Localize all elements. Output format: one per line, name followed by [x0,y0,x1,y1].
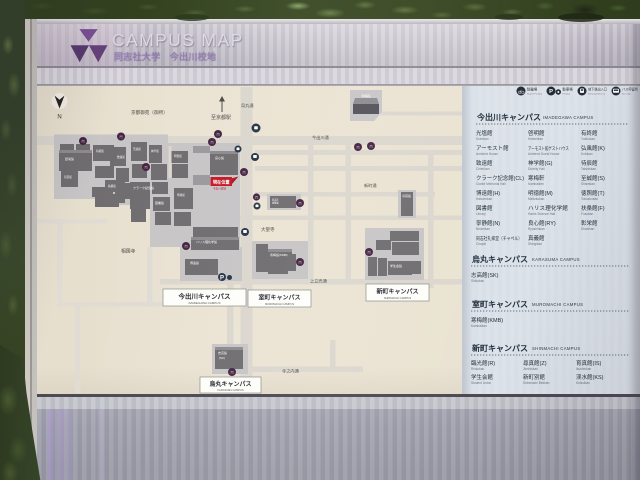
svg-text:Jinshinkan: Jinshinkan [523,367,538,371]
svg-text:今出川校地: 今出川校地 [213,187,226,191]
svg-text:Koenkan: Koenkan [476,137,489,141]
svg-text:(SK): (SK) [219,356,225,360]
svg-text:MUROMACHI CAMPUS: MUROMACHI CAMPUS [532,302,583,307]
svg-text:啓明館: 啓明館 [528,129,545,137]
svg-text:尋真館(Z): 尋真館(Z) [523,359,547,367]
svg-text:Shingikan: Shingikan [528,242,542,246]
svg-text:Fusokan: Fusokan [581,212,593,216]
svg-text:Amherst Guest House: Amherst Guest House [528,152,560,156]
svg-text:Chapel: Chapel [476,242,486,246]
svg-text:駐輪場: 駐輪場 [527,87,538,92]
svg-text:IMADEGAWA CAMPUS: IMADEGAWA CAMPUS [189,301,221,305]
svg-text:KARASUMA CAMPUS: KARASUMA CAMPUS [532,257,580,262]
svg-text:相国寺: 相国寺 [121,248,136,255]
svg-text:Ryoshinkan: Ryoshinkan [528,227,545,231]
svg-text:寧静館(N): 寧静館(N) [476,219,500,227]
svg-text:扶桑館(F): 扶桑館(F) [581,204,605,212]
svg-text:至誠館(S): 至誠館(S) [581,174,605,182]
svg-text:門: 門 [231,370,234,374]
svg-text:至誠館: 至誠館 [133,147,141,151]
svg-text:志高館: 志高館 [218,350,227,355]
svg-text:門: 門 [255,195,258,199]
svg-text:Rinkokan: Rinkokan [471,367,485,371]
svg-text:Neiseikan: Neiseikan [476,227,490,231]
svg-text:新町別館: 新町別館 [523,373,546,381]
svg-text:待辰館: 待辰館 [64,175,72,179]
svg-text:博遠館: 博遠館 [190,260,199,265]
svg-text:博遠館(H): 博遠館(H) [476,189,500,197]
svg-text:烏丸キャンパス: 烏丸キャンパス [472,254,528,264]
svg-text:門: 門 [357,145,360,149]
svg-text:P: P [549,89,553,95]
svg-text:N: N [57,115,61,121]
svg-text:現在位置: 現在位置 [213,178,231,185]
svg-text:徳照館(T): 徳照館(T) [581,189,605,197]
svg-text:烏丸通: 烏丸通 [241,102,254,109]
svg-text:至京都駅: 至京都駅 [211,114,231,121]
svg-text:烏丸キャンパス: 烏丸キャンパス [209,380,251,388]
svg-text:扶桑館: 扶桑館 [108,184,116,188]
svg-text:バス停留所: バス停留所 [622,87,639,92]
svg-text:Taishinkan: Taishinkan [581,167,596,171]
svg-text:有終館: 有終館 [581,129,598,137]
svg-text:神学館: 神学館 [151,149,159,153]
svg-text:Yushukan: Yushukan [581,137,595,141]
svg-text:門: 門 [370,144,373,148]
svg-text:新町通: 新町通 [364,182,377,189]
svg-text:寺之内通: 寺之内通 [282,368,300,375]
svg-text:今出川キャンパス: 今出川キャンパス [476,112,541,122]
svg-text:彰栄館: 彰栄館 [581,219,598,227]
svg-text:駐車場: 駐車場 [563,87,574,92]
svg-text:門: 門 [211,140,214,144]
svg-text:SHINMACHI CAMPUS: SHINMACHI CAMPUS [532,346,581,351]
svg-text:Chienkan: Chienkan [476,167,490,171]
svg-text:門: 門 [120,135,123,139]
svg-text:地下鉄出入口: 地下鉄出入口 [588,87,607,92]
svg-text:大聖寺: 大聖寺 [261,226,275,233]
svg-text:Keimeikan: Keimeikan [528,137,543,141]
svg-text:Kambaikan: Kambaikan [471,324,487,328]
svg-text:致遠館: 致遠館 [476,159,493,167]
svg-text:京都御苑（御所）: 京都御苑（御所） [131,109,168,116]
svg-text:寒梅館(KMB): 寒梅館(KMB) [270,252,288,257]
svg-text:渓水館(KS): 渓水館(KS) [576,373,604,381]
svg-text:待辰館: 待辰館 [581,159,598,167]
svg-text:門: 門 [217,132,220,136]
svg-text:室町キャンパス: 室町キャンパス [258,294,300,302]
svg-text:Bus Stop: Bus Stop [622,93,632,96]
svg-text:今出川キャンパス: 今出川キャンパス [179,292,231,301]
svg-text:Amherst House: Amherst House [476,152,498,156]
svg-text:Shiseikan: Shiseikan [581,182,595,186]
svg-text:上立売通: 上立売通 [310,278,328,285]
svg-text:Meitokukan: Meitokukan [528,197,545,201]
svg-text:ハリス理化学館: ハリス理化学館 [196,239,217,244]
svg-text:弘風館(K): 弘風館(K) [581,144,605,152]
svg-text:Tokushokan: Tokushokan [581,197,598,201]
svg-text:神学館(G): 神学館(G) [528,159,553,167]
svg-text:尋真館: 尋真館 [402,193,411,198]
svg-text:志高館(SK): 志高館(SK) [471,271,499,279]
svg-text:門: 門 [368,250,371,254]
svg-text:良心館: 良心館 [215,155,224,160]
svg-text:Divinity Hall: Divinity Hall [528,167,545,171]
svg-text:育真館(IS): 育真館(IS) [576,359,602,367]
svg-text:アーモスト館ゲストハウス: アーモスト館ゲストハウス [528,145,569,152]
svg-text:有終館: 有終館 [96,149,104,153]
svg-text:明徳館: 明徳館 [174,154,182,158]
svg-text:アーモスト館: アーモスト館 [476,144,509,152]
svg-text:寒梅軒: 寒梅軒 [528,174,545,182]
svg-text:Ikushinkan: Ikushinkan [576,367,591,371]
svg-text:光塩館: 光塩館 [476,129,493,137]
svg-text:Keisuikan: Keisuikan [576,381,590,385]
svg-text:Bicycle Parking: Bicycle Parking [527,93,543,96]
svg-text:学生会館: 学生会館 [390,263,402,268]
svg-text:P: P [220,275,224,281]
svg-text:Kambaiken: Kambaiken [528,182,544,186]
svg-text:SHINMACHI CAMPUS: SHINMACHI CAMPUS [384,296,412,300]
svg-text:門: 門 [185,244,188,248]
svg-text:クラーク記念館(CL): クラーク記念館(CL) [476,174,524,182]
svg-text:寒梅館: 寒梅館 [361,93,370,98]
svg-text:門: 門 [299,201,302,205]
svg-text:Shinmachi Bekkan: Shinmachi Bekkan [523,381,550,385]
svg-text:学生会館: 学生会館 [471,373,494,381]
svg-text:臨光館(R): 臨光館(R) [471,359,495,367]
svg-text:図書館: 図書館 [476,204,493,212]
svg-text:Parking: Parking [563,93,571,96]
svg-text:新町キャンパス: 新町キャンパス [472,343,528,353]
svg-text:Harris Science Hall: Harris Science Hall [528,212,555,216]
svg-text:門: 門 [299,260,302,264]
svg-text:Shikokan: Shikokan [471,279,484,283]
svg-text:Clarke Memorial Hall: Clarke Memorial Hall [476,182,506,186]
svg-text:Student Union: Student Union [471,381,491,385]
svg-text:Library: Library [476,212,486,216]
svg-text:室町キャンパス: 室町キャンパス [472,299,528,309]
svg-text:ハリス理化学館: ハリス理化学館 [528,204,569,212]
svg-text:クラーク記念館: クラーク記念館 [133,185,154,190]
svg-text:今出川通: 今出川通 [312,134,330,141]
svg-text:Kofukan: Kofukan [581,152,593,156]
svg-text:良心館(RY): 良心館(RY) [528,219,556,227]
svg-text:新町キャンパス: 新町キャンパス [376,288,418,296]
svg-text:Subway Entrance: Subway Entrance [588,93,606,96]
svg-text:門: 門 [145,165,148,169]
svg-text:Hakuenkan: Hakuenkan [476,197,492,201]
svg-text:寒梅館(KMB): 寒梅館(KMB) [471,316,503,324]
svg-text:IMADEGAWA CAMPUS: IMADEGAWA CAMPUS [543,115,594,120]
svg-text:致遠館: 致遠館 [117,155,125,159]
svg-text:明徳館(M): 明徳館(M) [528,189,553,197]
svg-text:真義館: 真義館 [528,234,545,242]
svg-text:MUROMACHI CAMPUS: MUROMACHI CAMPUS [265,302,294,306]
svg-text:門: 門 [243,170,246,174]
svg-text:門: 門 [82,139,85,143]
svg-text:寧静館: 寧静館 [177,193,185,197]
svg-text:同志社礼拝堂（チャペル）: 同志社礼拝堂（チャペル） [476,235,522,242]
svg-text:Shoeikan: Shoeikan [581,227,595,231]
svg-text:図書館: 図書館 [155,200,164,205]
svg-text:KARASUMA CAMPUS: KARASUMA CAMPUS [217,388,244,392]
svg-text:彰栄館: 彰栄館 [65,156,74,161]
